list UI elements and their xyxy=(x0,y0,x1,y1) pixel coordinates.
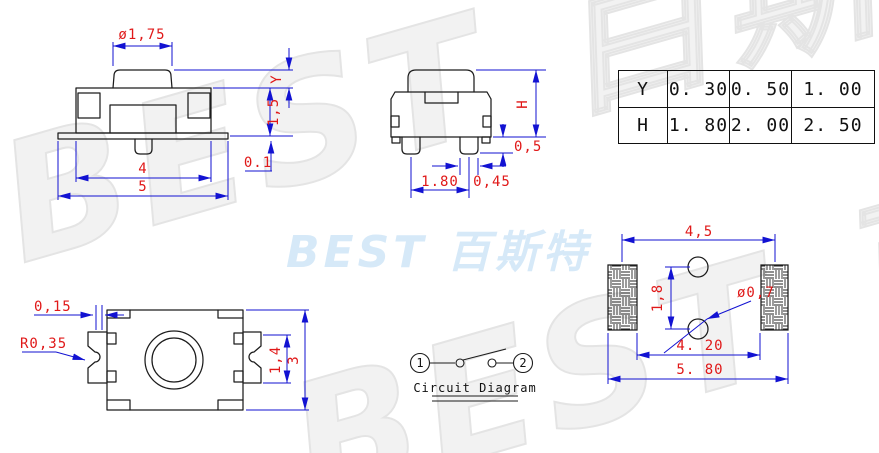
dim-label-body-width: 4 xyxy=(138,161,147,177)
top-left-pad-tab-1 xyxy=(107,333,116,344)
footprint-hole-bottom xyxy=(688,319,708,339)
front-pin xyxy=(135,139,152,154)
front-right-block xyxy=(188,93,210,118)
top-right-pad xyxy=(243,332,261,383)
front-base-plate xyxy=(58,133,228,139)
front-view: ø1,75 Y 1,5 0.1 4 5 xyxy=(58,27,293,200)
terminal-1-label: 1 xyxy=(416,356,423,370)
dim-label-pad-outer-span: 5. 80 xyxy=(676,362,723,378)
top-right-pad-tab-1 xyxy=(234,333,243,344)
side-pin-2 xyxy=(460,137,478,154)
footprint: 4,5 1,8 ø0,7 4. 20 5. 80 xyxy=(608,224,788,384)
side-right-stub xyxy=(482,137,490,143)
circuit-caption: Circuit Diagram xyxy=(413,381,536,395)
dim-label-base-width: 5 xyxy=(138,179,147,195)
circuit-diagram: 1 2 Circuit Diagram xyxy=(411,349,537,401)
contact-2 xyxy=(488,359,496,367)
side-pin-1 xyxy=(402,137,420,154)
dim-label-pin-protrusion: 0,5 xyxy=(514,139,542,155)
switch-arm xyxy=(463,349,506,360)
terminal-2-label: 2 xyxy=(519,356,526,370)
top-body xyxy=(107,310,243,410)
top-corner-notch-tl xyxy=(107,310,130,318)
top-view: 0,15 R0,35 1,4 3 xyxy=(20,299,309,410)
front-left-block xyxy=(78,93,100,118)
dim-label-pad-inner-span: 4. 20 xyxy=(676,338,723,354)
footprint-hole-top xyxy=(688,257,708,277)
dim-label-pin-pitch: 1.80 xyxy=(421,174,459,190)
dim-label-button-diameter: ø1,75 xyxy=(118,27,165,43)
side-right-notch xyxy=(483,116,491,127)
dim-label-body-depth: 3 xyxy=(286,355,302,364)
top-right-pad-tab-2 xyxy=(234,371,243,382)
datasheet-drawing: BEST 百斯特 BEST 百斯特 BEST 百斯特 Y 0. 30 0. 50… xyxy=(0,0,879,453)
footprint-left-pad xyxy=(608,265,637,330)
top-left-pad-tab-2 xyxy=(107,371,116,382)
dim-label-hole-pitch: 1,8 xyxy=(650,284,666,312)
top-corner-notch-br xyxy=(218,400,243,410)
line-art-layer: ø1,75 Y 1,5 0.1 4 5 xyxy=(0,0,879,453)
top-dimensions xyxy=(22,305,309,410)
top-button-outer xyxy=(145,331,203,389)
dim-label-actuator-height: Y xyxy=(269,74,285,83)
dim-label-total-height: H xyxy=(515,99,531,108)
top-left-pad xyxy=(88,332,107,383)
top-corner-notch-tr xyxy=(218,310,243,318)
side-left-notch xyxy=(391,116,399,127)
side-view: H 0,5 1.80 0,45 xyxy=(391,70,546,198)
dim-label-standoff: 0.1 xyxy=(244,155,272,171)
top-button-inner xyxy=(152,338,196,382)
contact-1 xyxy=(456,359,464,367)
dim-label-edge-step: 0,15 xyxy=(34,299,72,315)
dim-label-body-height: 1,5 xyxy=(266,98,282,126)
front-body xyxy=(76,88,211,133)
side-body xyxy=(391,92,491,137)
side-top-notch xyxy=(425,92,458,103)
front-button xyxy=(113,70,172,88)
dim-label-pad-pitch: 4,5 xyxy=(685,224,713,240)
side-left-stub xyxy=(392,137,400,143)
dim-label-pad-height: 1,4 xyxy=(268,346,284,374)
dim-label-pin-width: 0,45 xyxy=(473,174,511,190)
side-button xyxy=(408,70,474,92)
dim-label-groove-radius: R0,35 xyxy=(20,336,67,352)
front-center-recess xyxy=(110,105,176,133)
dim-label-hole-diameter: ø0,7 xyxy=(737,285,775,301)
top-corner-notch-bl xyxy=(107,400,130,410)
